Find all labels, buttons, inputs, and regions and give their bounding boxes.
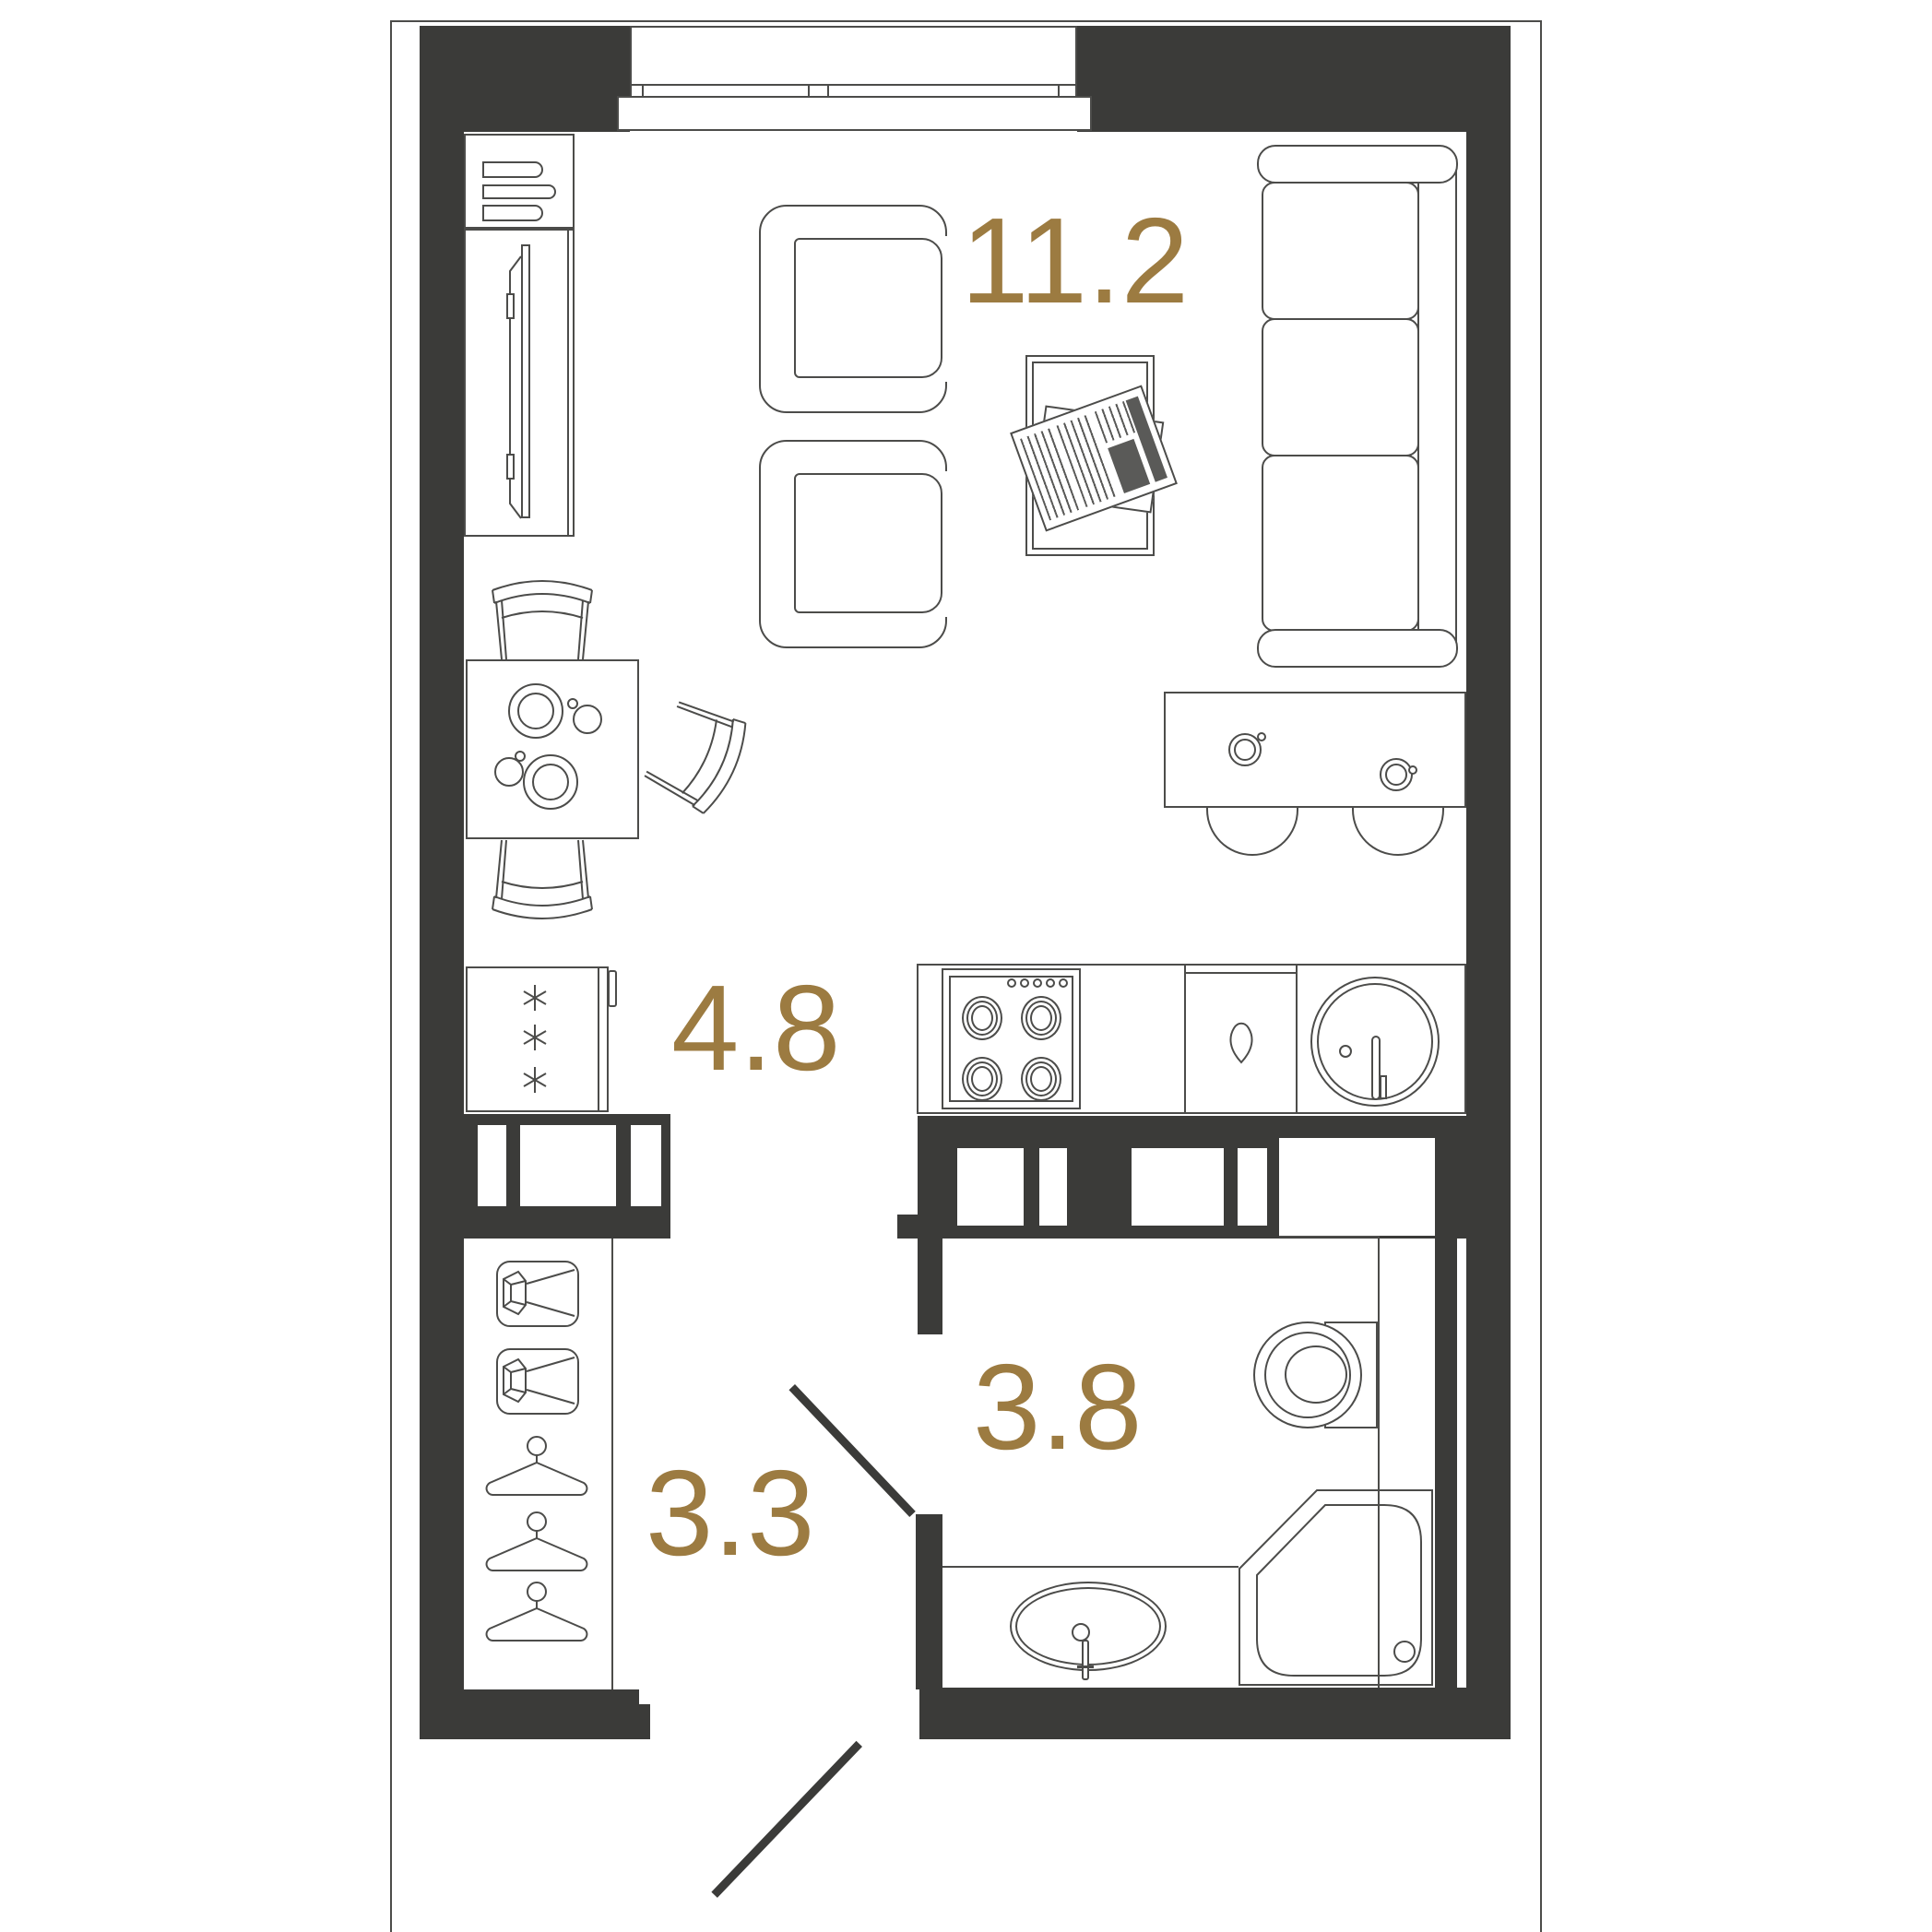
wall-top-right-pier — [1077, 26, 1511, 132]
partition-glass-slot — [1039, 1148, 1067, 1226]
bar-counter — [1164, 692, 1466, 808]
wall-left — [420, 26, 464, 1739]
plot-frame-top — [390, 20, 1542, 22]
partition-glass-slot — [957, 1148, 1024, 1226]
faucet-stem — [1082, 1640, 1089, 1680]
wall-right — [1466, 26, 1511, 1739]
bar-stool — [1206, 806, 1298, 856]
faucet — [1072, 1623, 1090, 1642]
cup — [573, 705, 602, 734]
wall-bottom-hall — [420, 1689, 639, 1739]
stove-knob — [1059, 978, 1068, 988]
plot-frame-left — [390, 20, 392, 1932]
partition-glass-slot — [1238, 1148, 1267, 1226]
snowflake-icon — [520, 1023, 550, 1052]
stove-knob — [1033, 978, 1042, 988]
room-label-hallway: 3.3 — [646, 1452, 815, 1574]
toilet-bowl-inner — [1285, 1345, 1347, 1404]
shelf-item — [482, 205, 543, 221]
water-drop-icon — [1223, 1013, 1260, 1064]
sofa-armrest — [1257, 145, 1458, 184]
partition-glass-slot — [631, 1125, 661, 1206]
bath-wall-nub — [897, 1215, 942, 1239]
tv-bracket — [506, 454, 515, 480]
drain — [1339, 1045, 1352, 1058]
wardrobe-divider — [611, 1239, 613, 1689]
armchair-seat — [794, 238, 942, 378]
shower-tray — [1239, 1488, 1435, 1688]
burner — [1030, 1005, 1052, 1031]
cup-handle — [567, 698, 578, 709]
fridge-door-line — [598, 968, 599, 1110]
snowflake-icon — [520, 983, 550, 1013]
bath-wall-left-lower — [916, 1514, 942, 1689]
vanity-counter-line — [942, 1566, 1239, 1568]
bar-stool — [1352, 806, 1444, 856]
chair — [487, 566, 598, 662]
cup — [494, 757, 524, 787]
partition-glass-slot — [1132, 1148, 1224, 1226]
burner — [971, 1005, 993, 1031]
stove-knob — [1020, 978, 1029, 988]
sofa-cushion — [1262, 182, 1419, 320]
sofa-cushion — [1262, 455, 1419, 632]
wardrobe-spotlight-icon — [496, 1261, 579, 1327]
partition-glass-slot — [478, 1125, 506, 1206]
chair — [487, 837, 598, 933]
room-label-living: 11.2 — [961, 200, 1189, 322]
wall-top-left-pier — [420, 26, 630, 132]
window-bay — [630, 26, 1077, 86]
burner — [1030, 1066, 1052, 1092]
fridge-handle — [608, 970, 617, 1007]
window-sill — [617, 96, 1092, 131]
shelf-item — [482, 161, 543, 178]
chair — [636, 688, 770, 829]
stove-knob — [1046, 978, 1055, 988]
floor-plan: 11.2 4.8 3.3 3.8 — [0, 0, 1932, 1932]
dining-table — [466, 659, 639, 839]
newspaper — [1022, 387, 1169, 544]
plot-frame-right — [1540, 20, 1542, 1932]
shelf-item — [482, 184, 556, 199]
sofa-cushion — [1262, 318, 1419, 456]
stove-knob — [1007, 978, 1016, 988]
clothes-hanger-icon — [477, 1435, 597, 1501]
entrance-door-leaf — [711, 1741, 862, 1898]
armchair-seat — [794, 473, 942, 613]
cup-handle — [1408, 765, 1417, 775]
plate-inner — [517, 693, 554, 729]
clothes-hanger-icon — [477, 1511, 597, 1577]
clothes-hanger-icon — [477, 1581, 597, 1647]
tv-screen — [521, 244, 530, 518]
sofa-backrest — [1417, 155, 1457, 658]
wardrobe-spotlight-icon — [496, 1348, 579, 1415]
plate-inner — [532, 764, 569, 800]
wall-bottom-hall-jamb — [639, 1704, 650, 1739]
partition-glass-slot — [520, 1125, 616, 1206]
tv-cabinet-edge — [567, 231, 569, 535]
bath-wall-right-leaf — [1435, 1138, 1457, 1689]
tv-bracket — [506, 293, 515, 319]
faucet-handle — [1380, 1075, 1387, 1099]
niche-bottom-line — [1279, 1236, 1380, 1238]
room-label-bathroom: 3.8 — [973, 1346, 1143, 1468]
duct-niche — [1279, 1138, 1435, 1236]
faucet-tick — [1077, 1665, 1094, 1668]
room-label-kitchen: 4.8 — [671, 967, 841, 1089]
coffee-cup-inner — [1234, 739, 1256, 761]
dishwasher-line — [1186, 972, 1296, 974]
newspaper-front-page — [1010, 385, 1178, 531]
cup-handle — [1257, 732, 1266, 741]
bath-wall-left-upper — [918, 1239, 942, 1334]
coffee-cup-inner — [1385, 764, 1407, 786]
sofa-armrest — [1257, 629, 1458, 668]
wall-bottom-bath — [919, 1688, 1511, 1739]
burner — [971, 1066, 993, 1092]
snowflake-icon — [520, 1065, 550, 1095]
